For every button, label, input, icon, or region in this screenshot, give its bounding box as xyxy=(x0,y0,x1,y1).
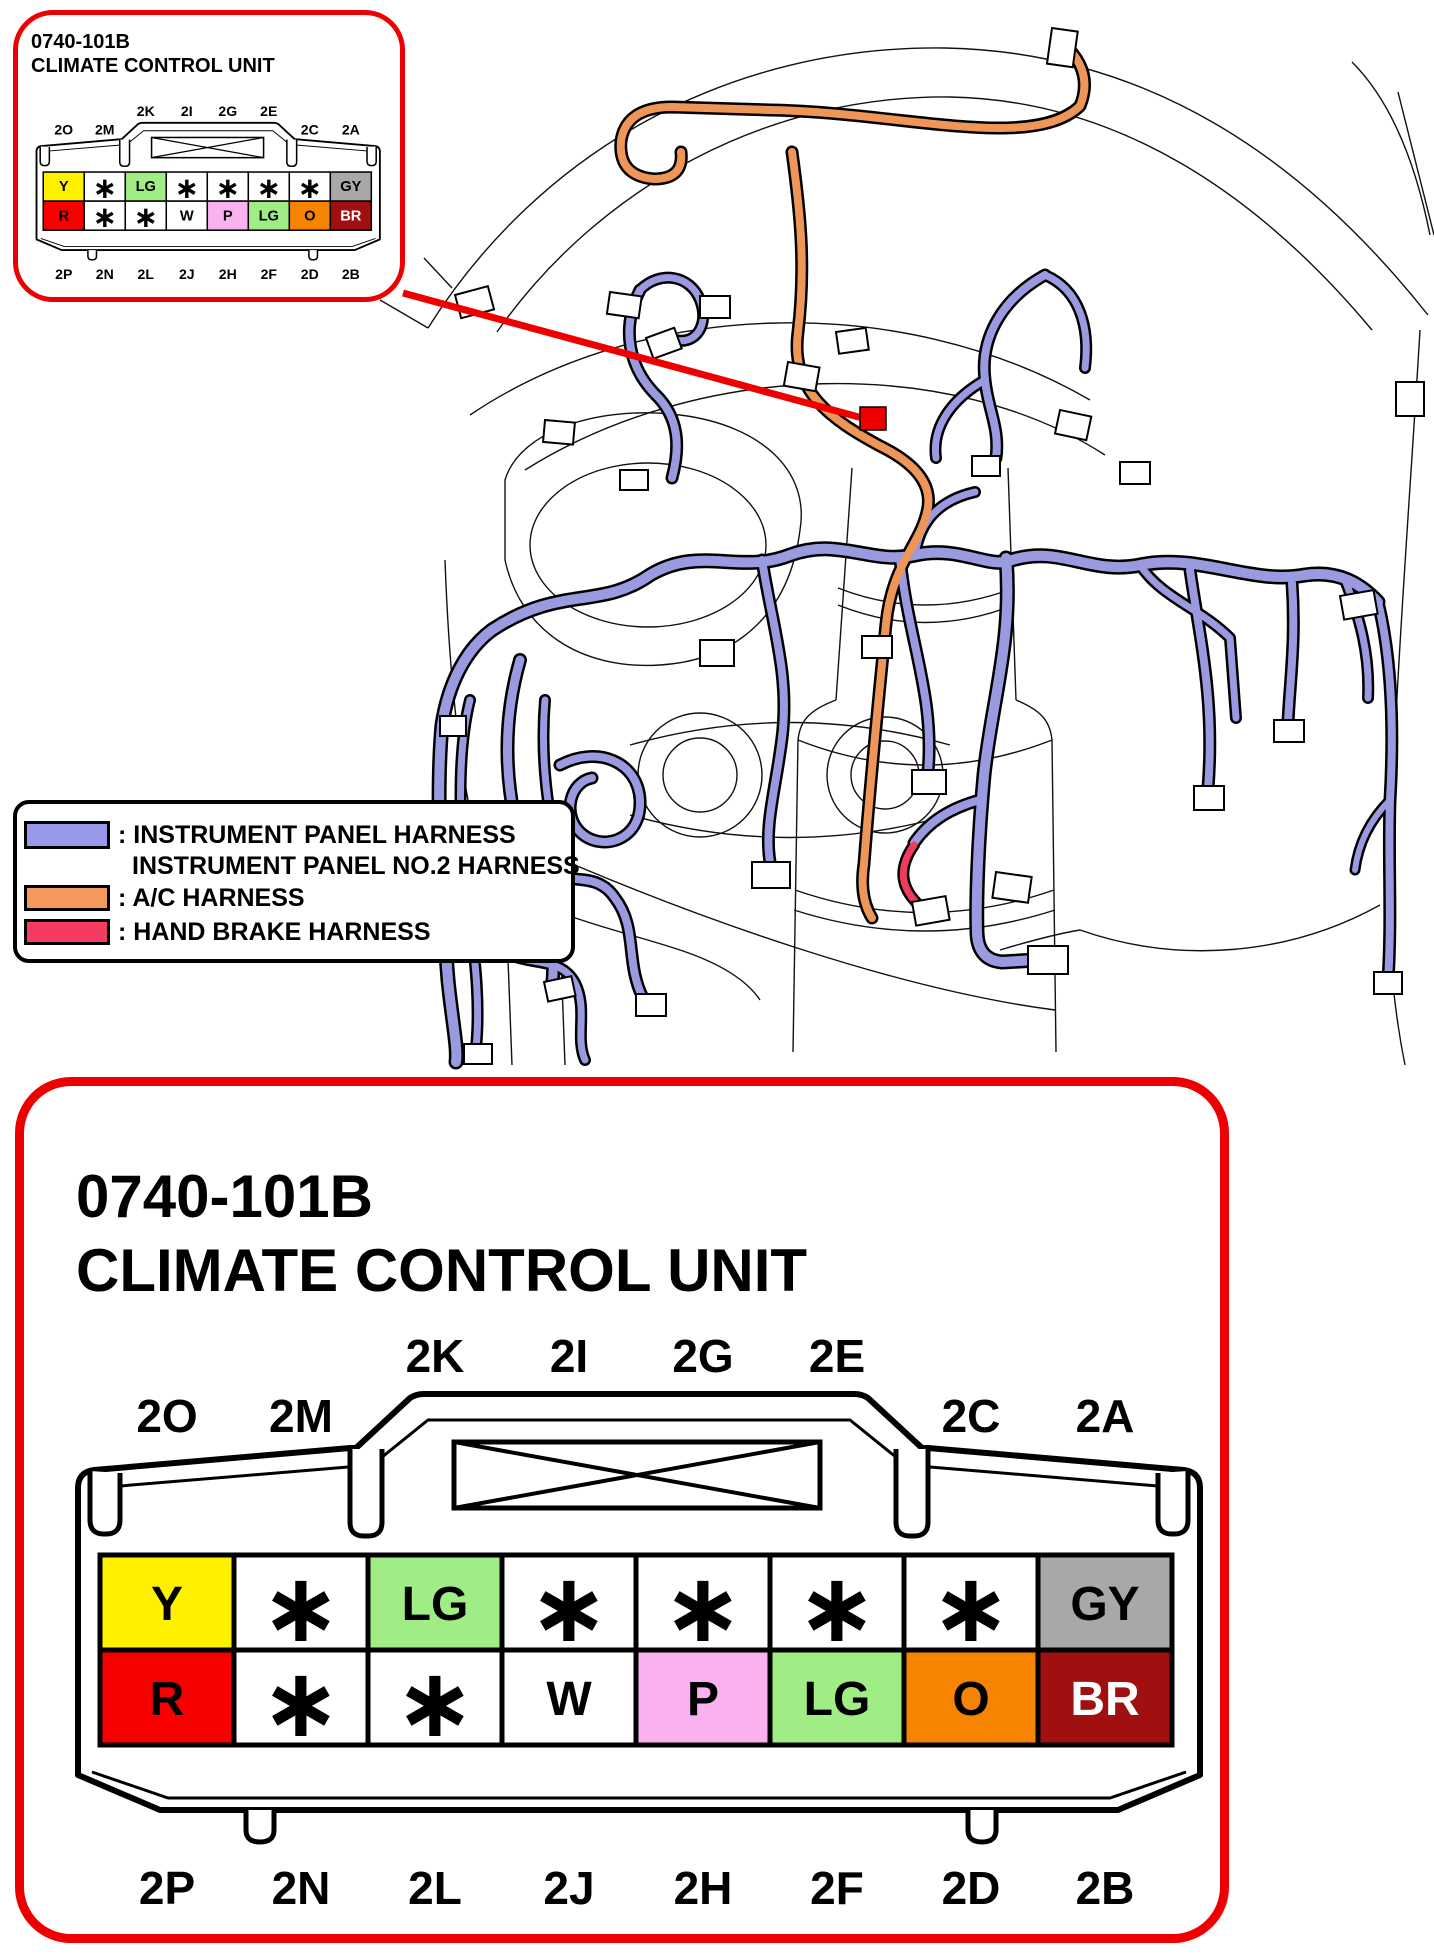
legend-label: INSTRUMENT PANEL NO.2 HARNESS xyxy=(132,853,580,879)
instrument-panel-harness-wire xyxy=(1045,275,1086,368)
harness-legend: : INSTRUMENT PANEL HARNESS INSTRUMENT PA… xyxy=(13,800,575,963)
instrument-panel-harness-wire xyxy=(984,275,1045,458)
inset-title: CLIMATE CONTROL UNIT xyxy=(31,55,275,78)
legend-swatch-ac xyxy=(24,885,110,911)
harness-wire-outline xyxy=(500,950,585,1060)
inset-connector-diagram xyxy=(31,103,386,287)
inset-callout-box: 0740-101B CLIMATE CONTROL UNIT xyxy=(13,10,405,302)
legend-label: : INSTRUMENT PANEL HARNESS xyxy=(118,822,516,848)
instrument-panel-harness-wire xyxy=(492,549,1012,630)
harness-wire-outline xyxy=(792,152,928,918)
ac-harness-wire xyxy=(792,152,928,918)
detail-part-number: 0740-101B xyxy=(76,1164,373,1230)
legend-swatch-instrument-panel xyxy=(24,821,110,849)
detail-title: CLIMATE CONTROL UNIT xyxy=(76,1238,807,1304)
callout-pointer xyxy=(403,293,886,430)
legend-label: : HAND BRAKE HARNESS xyxy=(118,919,431,945)
callout-target-marker xyxy=(860,407,886,430)
page: Y∗LG∗∗∗∗GYR∗∗WPLGOBR2O2M2K2I2G2E2C2A2P2N… xyxy=(0,0,1434,1956)
ac-harness-wire xyxy=(621,44,1085,179)
inset-part-number: 0740-101B xyxy=(31,31,130,54)
detail-callout-box: 0740-101B CLIMATE CONTROL UNIT xyxy=(15,1077,1229,1943)
legend-label: : A/C HARNESS xyxy=(118,885,305,911)
detail-connector-diagram xyxy=(60,1330,1220,1930)
legend-swatch-hand-brake xyxy=(24,919,110,945)
